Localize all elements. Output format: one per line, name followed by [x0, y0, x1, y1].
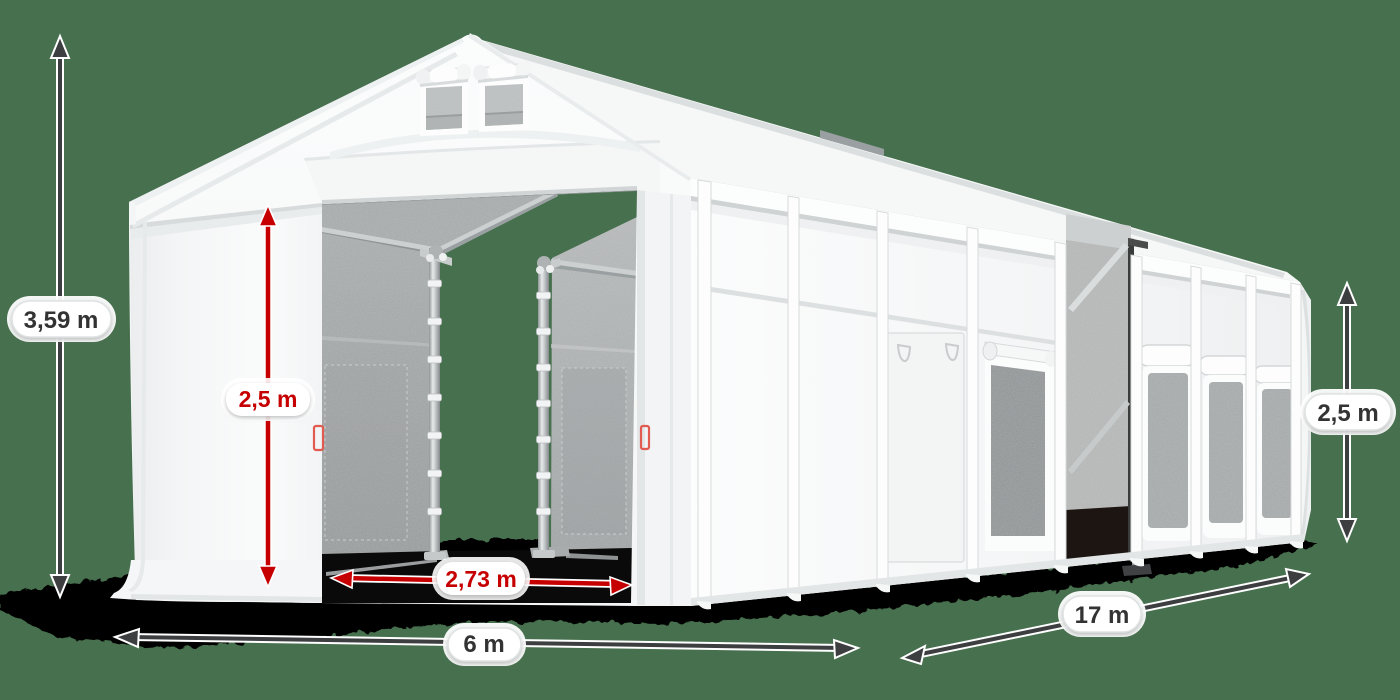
svg-text:2,5 m: 2,5 m: [239, 386, 298, 412]
svg-text:2,5 m: 2,5 m: [1317, 400, 1378, 427]
svg-text:3,59 m: 3,59 m: [24, 307, 99, 334]
svg-text:2,73 m: 2,73 m: [445, 566, 517, 592]
svg-text:6 m: 6 m: [463, 631, 504, 658]
svg-text:17 m: 17 m: [1075, 602, 1130, 629]
